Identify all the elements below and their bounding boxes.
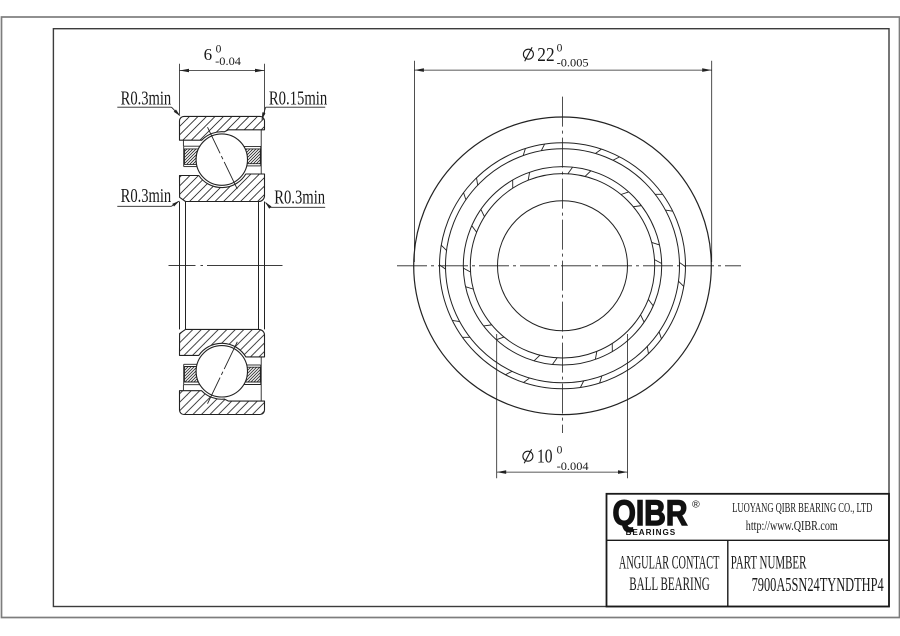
svg-text:0: 0 bbox=[557, 43, 563, 55]
svg-text:PART NUMBER: PART NUMBER bbox=[731, 553, 807, 573]
svg-text:-0.004: -0.004 bbox=[557, 461, 589, 473]
svg-text:0: 0 bbox=[557, 444, 563, 456]
svg-text:22: 22 bbox=[537, 44, 554, 66]
svg-text:R0.15min: R0.15min bbox=[269, 87, 327, 109]
svg-text:http://www.QIBR.com: http://www.QIBR.com bbox=[746, 519, 838, 534]
svg-text:0: 0 bbox=[216, 43, 222, 55]
svg-text:7900A5SN24TYNDTHP4: 7900A5SN24TYNDTHP4 bbox=[752, 575, 884, 596]
svg-text:R0.3min: R0.3min bbox=[121, 185, 172, 207]
svg-text:-0.005: -0.005 bbox=[557, 58, 589, 70]
svg-text:BALL BEARING: BALL BEARING bbox=[629, 575, 710, 595]
svg-text:R0.3min: R0.3min bbox=[121, 87, 172, 109]
svg-text:BEARINGS: BEARINGS bbox=[626, 527, 677, 537]
svg-text:®: ® bbox=[692, 499, 700, 511]
svg-text:R0.3min: R0.3min bbox=[274, 187, 325, 209]
svg-text:ANGULAR CONTACT: ANGULAR CONTACT bbox=[619, 553, 720, 573]
svg-text:10: 10 bbox=[537, 445, 553, 467]
svg-text:LUOYANG QIBR BEARING CO., LTD: LUOYANG QIBR BEARING CO., LTD bbox=[732, 501, 872, 516]
svg-text:-0.04: -0.04 bbox=[215, 56, 241, 68]
svg-text:6: 6 bbox=[204, 45, 213, 64]
